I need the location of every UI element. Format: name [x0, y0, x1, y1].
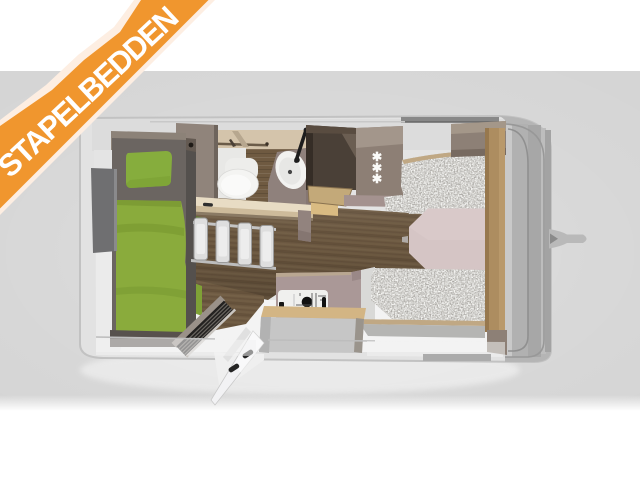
svg-text:✱: ✱	[372, 172, 383, 186]
